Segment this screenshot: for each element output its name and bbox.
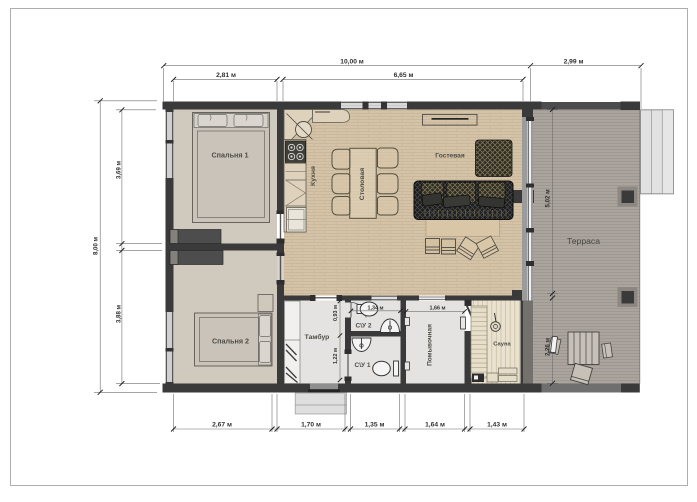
svg-text:1,34 м: 1,34 м [368,305,384,311]
svg-text:8,00 м: 8,00 м [93,236,100,255]
svg-text:0,93 м: 0,93 м [333,305,339,321]
svg-text:3,69 м: 3,69 м [116,160,123,179]
svg-text:2,26 м: 2,26 м [545,337,552,356]
svg-text:6,65 м: 6,65 м [394,72,414,79]
svg-text:Гостевая: Гостевая [435,153,465,160]
svg-text:5,02 м: 5,02 м [544,189,551,208]
svg-text:Спальня 2: Спальня 2 [212,337,249,346]
svg-text:1,22 м: 1,22 м [333,348,339,364]
svg-text:1,66 м: 1,66 м [430,305,446,311]
svg-text:10,00 м: 10,00 м [340,59,364,66]
svg-text:2,81 м: 2,81 м [216,72,236,79]
svg-text:2,99 м: 2,99 м [564,59,584,66]
svg-text:3,88 м: 3,88 м [116,304,123,323]
svg-text:1,70 м: 1,70 м [301,422,321,429]
svg-text:Тамбур: Тамбур [305,333,330,341]
svg-text:Сауна: Сауна [493,342,511,348]
svg-text:С\У 2: С\У 2 [356,323,372,330]
svg-text:Спальня 1: Спальня 1 [211,151,248,160]
svg-text:1,43 м: 1,43 м [487,422,507,429]
svg-text:С\У 1: С\У 1 [355,362,371,369]
svg-text:1,35 м: 1,35 м [365,422,385,429]
svg-text:1,64 м: 1,64 м [425,422,445,429]
svg-text:Кухня: Кухня [310,166,317,186]
svg-text:2,67 м: 2,67 м [212,422,232,429]
svg-text:Столовая: Столовая [359,168,366,200]
svg-text:Терраса: Терраса [567,236,600,246]
svg-text:Помывочная: Помывочная [427,324,434,366]
